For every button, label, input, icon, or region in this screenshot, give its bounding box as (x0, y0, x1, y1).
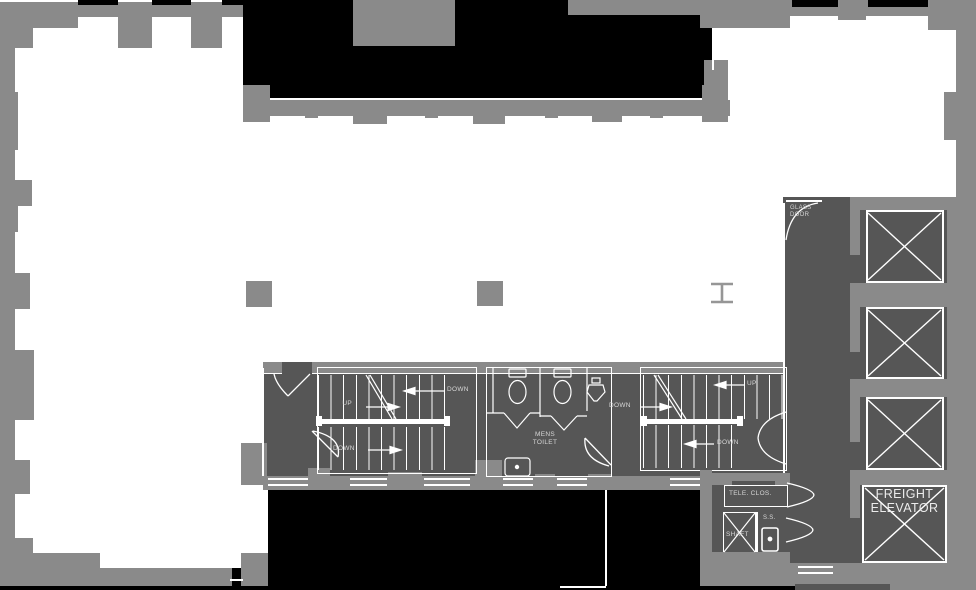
wall (775, 473, 790, 485)
divider-post (641, 416, 647, 426)
shaft-divider-wall (850, 470, 950, 485)
window (424, 478, 470, 486)
window (268, 478, 308, 486)
vestibule-wall-line (262, 368, 264, 476)
stair-treads (318, 375, 446, 419)
freight-elevator-label-line2: ELEVATOR (862, 502, 947, 516)
stair-treads (643, 425, 742, 468)
label-down-lower-west: DOWN (333, 445, 355, 453)
tele-closet-label: TELE. CLOS. (729, 490, 772, 498)
pier (944, 92, 958, 140)
pier (0, 180, 18, 232)
pier (33, 2, 78, 28)
pier (0, 350, 34, 420)
light-well (243, 0, 712, 100)
label-down-lower-east: DOWN (717, 439, 739, 447)
pier (0, 538, 33, 586)
light-well-block (353, 0, 455, 46)
window-recess (152, 0, 191, 5)
floor-plan-canvas: UP DOWN DOWN UP DOWN DOWN MENS TOILET GL… (0, 0, 976, 590)
window-line (712, 30, 714, 70)
mens-toilet-room (486, 367, 612, 477)
wall (732, 473, 775, 481)
divider-post (444, 416, 450, 426)
freight-elevator-label: FREIGHT ELEVATOR (862, 488, 947, 515)
column (477, 281, 503, 306)
wall-face-line (263, 373, 282, 374)
label-up-west: UP (334, 400, 352, 408)
window (503, 478, 533, 486)
shaft-north-wall (850, 197, 976, 210)
window-line (230, 579, 243, 581)
pier (473, 100, 505, 124)
door-opening (282, 362, 312, 373)
shaft-west-wall (850, 210, 860, 255)
pier (191, 2, 222, 48)
shaft-divider-wall (850, 283, 950, 307)
wall-block (700, 0, 790, 28)
partition-line (756, 512, 758, 553)
column (246, 281, 272, 307)
divider-post (737, 416, 743, 426)
window (350, 478, 387, 486)
window-recess (868, 0, 928, 7)
pier (388, 472, 422, 490)
floor-left-wing (12, 12, 268, 568)
landing-divider (318, 419, 446, 424)
shaft-west-wall (850, 397, 860, 442)
pier (118, 2, 152, 48)
pier (592, 100, 622, 122)
pier (241, 553, 268, 586)
elevator-car (866, 397, 944, 470)
site-line (560, 586, 606, 588)
label-down-upper-west: DOWN (447, 386, 469, 394)
shaft-label: SHAFT (726, 531, 749, 539)
glass-door-label: GLASS DOOR (790, 205, 812, 219)
dark-strip (795, 584, 890, 590)
shaft-west-wall (850, 485, 860, 518)
pier (0, 92, 18, 150)
elevator-car (866, 210, 944, 283)
divider-post (316, 416, 322, 426)
window-recess (222, 0, 243, 5)
site-line (605, 490, 607, 586)
mens-toilet-label: MENS TOILET (512, 431, 578, 446)
pier (838, 0, 866, 20)
stair-treads (643, 375, 784, 419)
elevator-lobby (783, 197, 857, 577)
pier (425, 100, 438, 118)
mens-toilet-label-line1: MENS (512, 431, 578, 439)
glass-door-label-line1: GLASS (790, 205, 812, 212)
lobby-wall-line (783, 203, 785, 476)
label-up-east: UP (747, 380, 757, 388)
exterior-wall-south-left (100, 568, 232, 586)
pier (0, 273, 30, 309)
glass-door-label-line2: DOOR (790, 212, 812, 219)
elevator-car (866, 307, 944, 379)
pier (353, 100, 387, 124)
floor-middle (267, 112, 784, 362)
pier (0, 460, 30, 494)
mens-toilet-label-line2: TOILET (512, 439, 578, 447)
window (557, 478, 587, 486)
wall (704, 473, 732, 485)
landing-divider (643, 419, 743, 424)
exterior-wall-south-left (33, 553, 100, 586)
pier (243, 85, 270, 122)
wall-column (704, 60, 728, 118)
pier (545, 100, 558, 118)
pier (0, 2, 33, 48)
freight-elevator-label-line1: FREIGHT (862, 488, 947, 502)
pier (305, 100, 318, 118)
slop-sink-label: S.S. (763, 515, 776, 523)
shaft-west-wall (850, 307, 860, 352)
glass-door-head (786, 200, 822, 202)
outside (0, 586, 795, 590)
window (798, 566, 833, 574)
pier (650, 100, 663, 118)
floor-right-room (712, 14, 958, 200)
shaft-divider-wall (850, 379, 950, 397)
window-recess (792, 0, 838, 7)
window-recess (78, 0, 118, 5)
window (670, 478, 703, 486)
exterior-wall-north-middle (568, 0, 712, 15)
exterior-wall-south-right (890, 563, 976, 590)
label-down-upper-east: DOWN (609, 402, 631, 410)
